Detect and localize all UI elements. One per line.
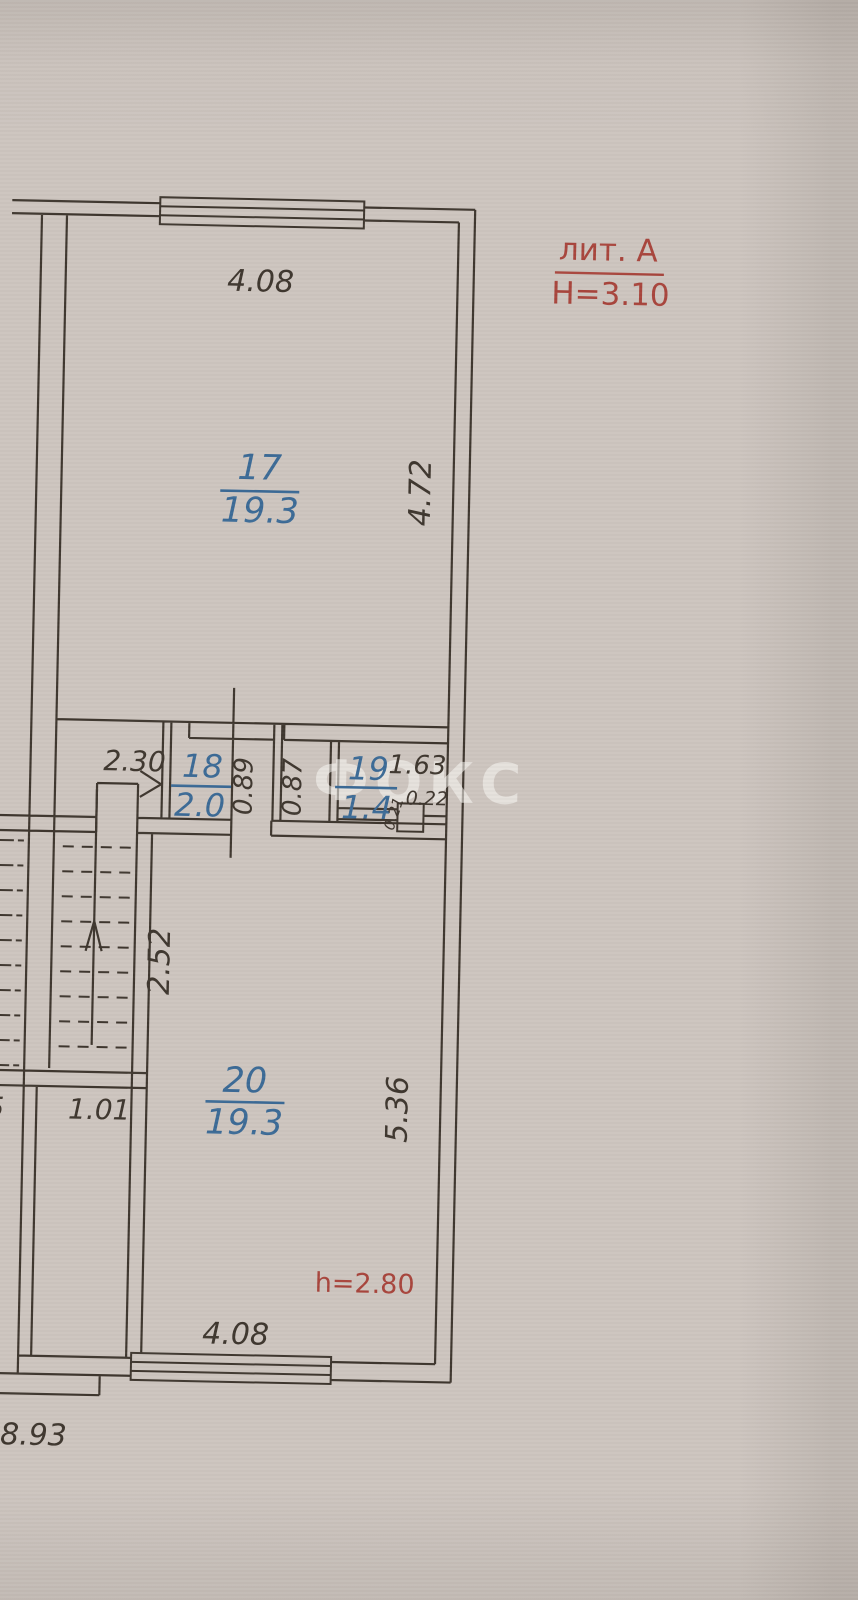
dim-stair-depth: 2.52: [142, 928, 178, 996]
room-20-number: 20: [222, 1061, 267, 1102]
dim-room20-depth: 5.36: [380, 1076, 416, 1144]
room-17-area: 19.3: [220, 491, 299, 533]
dim-corridor-width: 2.30: [103, 744, 166, 778]
dim-bottom-width: 4.08: [202, 1316, 270, 1352]
liter-fraction-line: [555, 272, 664, 274]
dim-room19-width: 1.63: [388, 750, 447, 781]
neighbor-stair-treads: [0, 840, 27, 1066]
dim-room17-depth: 4.72: [403, 459, 439, 527]
stair-direction-arrow: [84, 789, 105, 1045]
room-20-area: 19.3: [205, 1102, 284, 1144]
dim-top-width: 4.08: [227, 264, 295, 300]
liter-annotation: лит. А Н=3.10: [551, 231, 671, 313]
room-18-number: 18: [182, 747, 224, 786]
dim-shaft-b: 0.87: [277, 757, 308, 816]
window-bottom: [131, 1353, 332, 1384]
scanned-floor-plan-page: ФОКС 17 19.3 18 2.0 19 1.4 20 19.3: [0, 0, 858, 1600]
room-label-20: 20 19.3: [205, 1060, 286, 1144]
dim-left-cut: 5: [0, 1091, 5, 1124]
dim-shaft-a: 0.89: [228, 757, 259, 816]
room-label-17: 17 19.3: [219, 448, 300, 533]
dim-overall-width: 8.93: [0, 1417, 67, 1453]
building-height-label: Н=3.10: [551, 275, 670, 313]
liter-label: лит. А: [559, 232, 659, 270]
floor-plan-svg: ФОКС 17 19.3 18 2.0 19 1.4 20 19.3: [0, 0, 858, 1600]
dim-notch-width: 0.22: [405, 787, 448, 810]
room-19-number: 19: [348, 749, 390, 788]
plan-group: ФОКС 17 19.3 18 2.0 19 1.4 20 19.3: [0, 194, 671, 1466]
room-17-number: 17: [237, 448, 282, 489]
dim-stair-exit-width: 1.01: [68, 1092, 131, 1126]
window-top: [160, 197, 365, 228]
ceiling-height-label: h=2.80: [314, 1268, 414, 1301]
room-label-18: 18 2.0: [170, 747, 232, 825]
room-18-area: 2.0: [174, 786, 226, 825]
